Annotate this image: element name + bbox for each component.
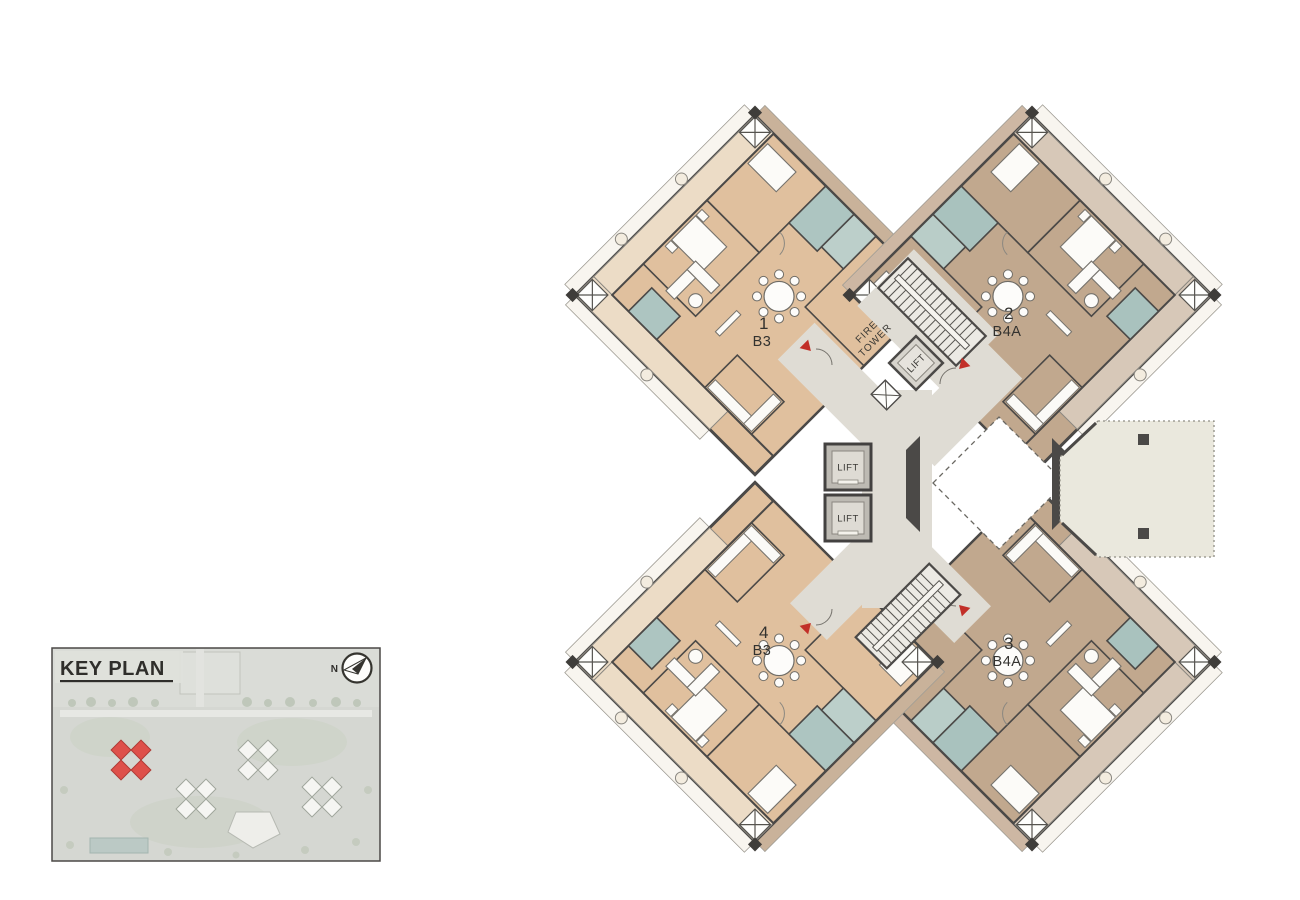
- unit-4-label-number: 4: [759, 623, 769, 642]
- floor-plan-canvas: LIFT FIRE TOWER LIFT LIFT: [0, 0, 1300, 900]
- unit-2-label-type: B4A: [993, 324, 1022, 340]
- lift-2-label: LIFT: [837, 514, 859, 525]
- key-plan-title: KEY PLAN: [60, 658, 165, 680]
- lift-1: LIFT: [825, 444, 871, 490]
- unit-2-label-number: 2: [1004, 304, 1014, 323]
- compass-north-label: N: [331, 664, 338, 675]
- unit-3-label-number: 3: [1004, 634, 1014, 653]
- floor-plan-page: LIFT FIRE TOWER LIFT LIFT: [0, 0, 1300, 900]
- void-wall-left: [906, 436, 920, 532]
- unit-1-label-number: 1: [759, 314, 769, 333]
- terrace: [1060, 421, 1214, 557]
- key-plan-panel: KEY PLAN N: [52, 648, 380, 861]
- key-plan-title-underline: [60, 680, 173, 682]
- unit-3-label-type: B4A: [993, 654, 1022, 670]
- lift-2: LIFT: [825, 495, 871, 541]
- unit-4-label-type: B3: [753, 643, 772, 659]
- lift-1-label: LIFT: [837, 463, 859, 474]
- terrace-column: [1138, 434, 1149, 445]
- key-plan-pool: [90, 838, 148, 853]
- terrace-column: [1138, 528, 1149, 539]
- unit-1-label-type: B3: [753, 334, 772, 350]
